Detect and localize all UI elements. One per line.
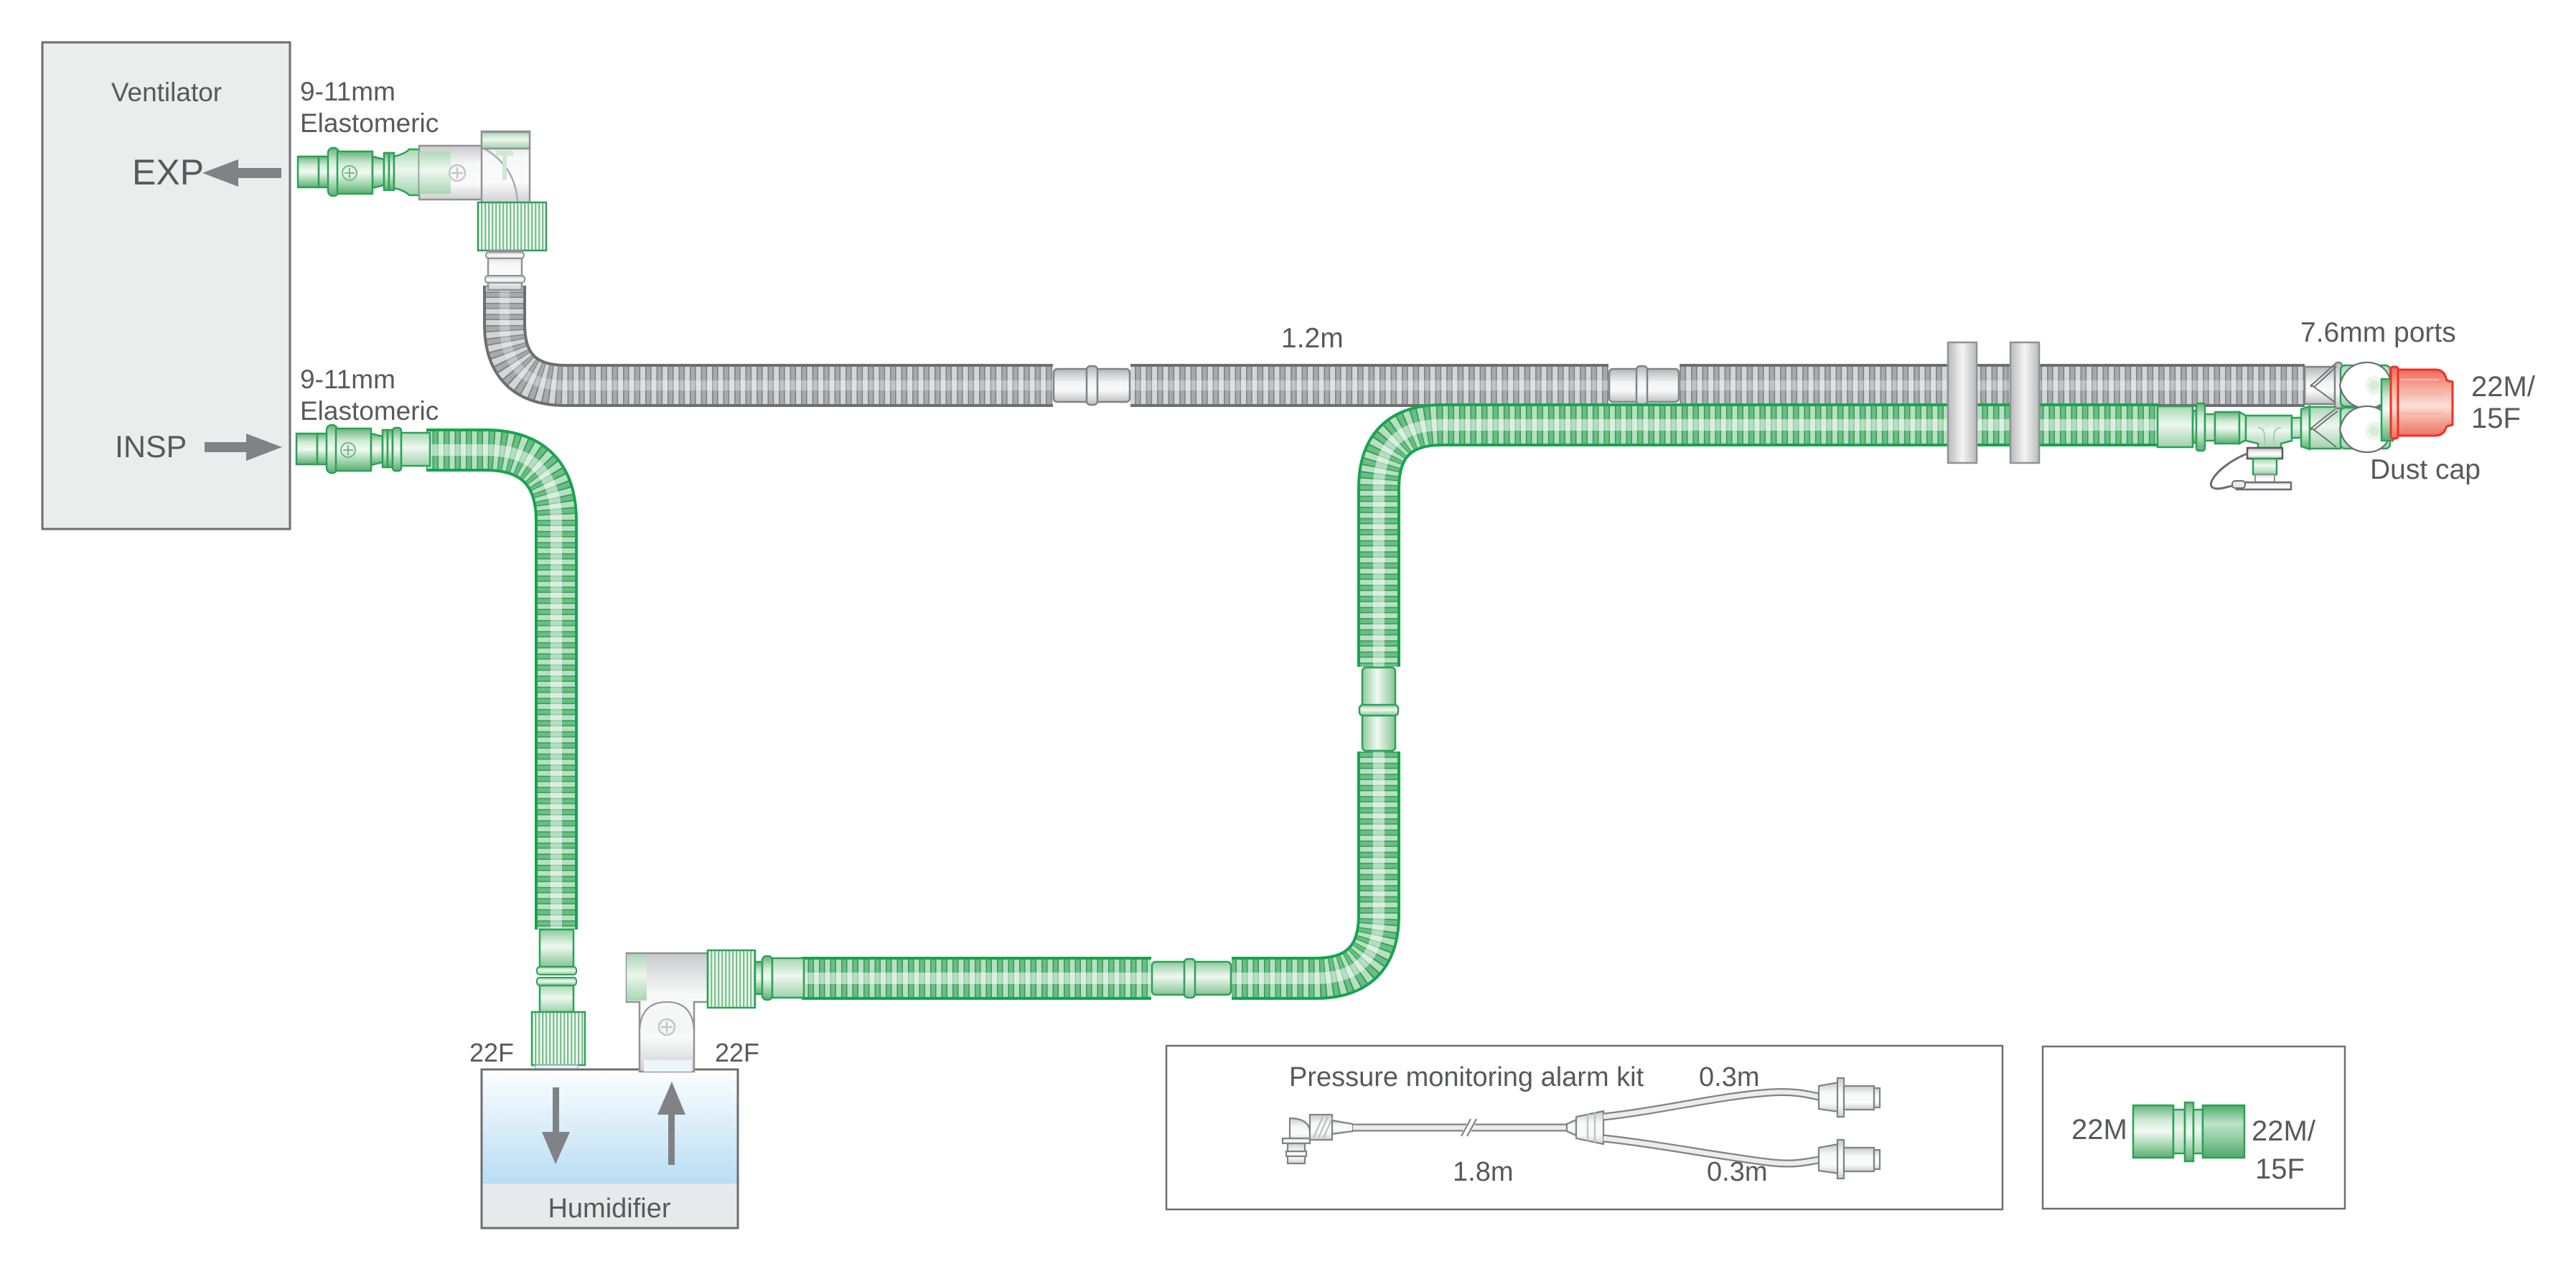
svg-text:INSP: INSP xyxy=(115,430,187,464)
svg-text:9-11mm: 9-11mm xyxy=(300,365,395,394)
svg-text:22F: 22F xyxy=(469,1038,514,1067)
svg-text:15F: 15F xyxy=(2255,1153,2305,1185)
svg-text:15F: 15F xyxy=(2471,403,2521,434)
svg-text:Ventilator: Ventilator xyxy=(111,78,222,107)
svg-text:EXP: EXP xyxy=(132,152,204,192)
svg-text:22M/: 22M/ xyxy=(2252,1115,2316,1147)
svg-text:Humidifier: Humidifier xyxy=(548,1194,670,1224)
svg-text:22F: 22F xyxy=(715,1038,759,1067)
svg-text:22M: 22M xyxy=(2071,1114,2127,1146)
svg-text:Pressure monitoring alarm kit: Pressure monitoring alarm kit xyxy=(1289,1062,1644,1092)
svg-text:1.8m: 1.8m xyxy=(1453,1157,1513,1187)
svg-text:Elastomeric: Elastomeric xyxy=(300,108,439,138)
svg-text:0.3m: 0.3m xyxy=(1699,1062,1759,1092)
svg-text:1.2m: 1.2m xyxy=(1281,323,1344,354)
svg-text:9-11mm: 9-11mm xyxy=(300,77,395,106)
svg-text:7.6mm ports: 7.6mm ports xyxy=(2300,317,2456,348)
svg-text:Dust cap: Dust cap xyxy=(2370,454,2481,485)
svg-text:22M/: 22M/ xyxy=(2471,371,2536,403)
svg-text:Elastomeric: Elastomeric xyxy=(300,396,439,426)
